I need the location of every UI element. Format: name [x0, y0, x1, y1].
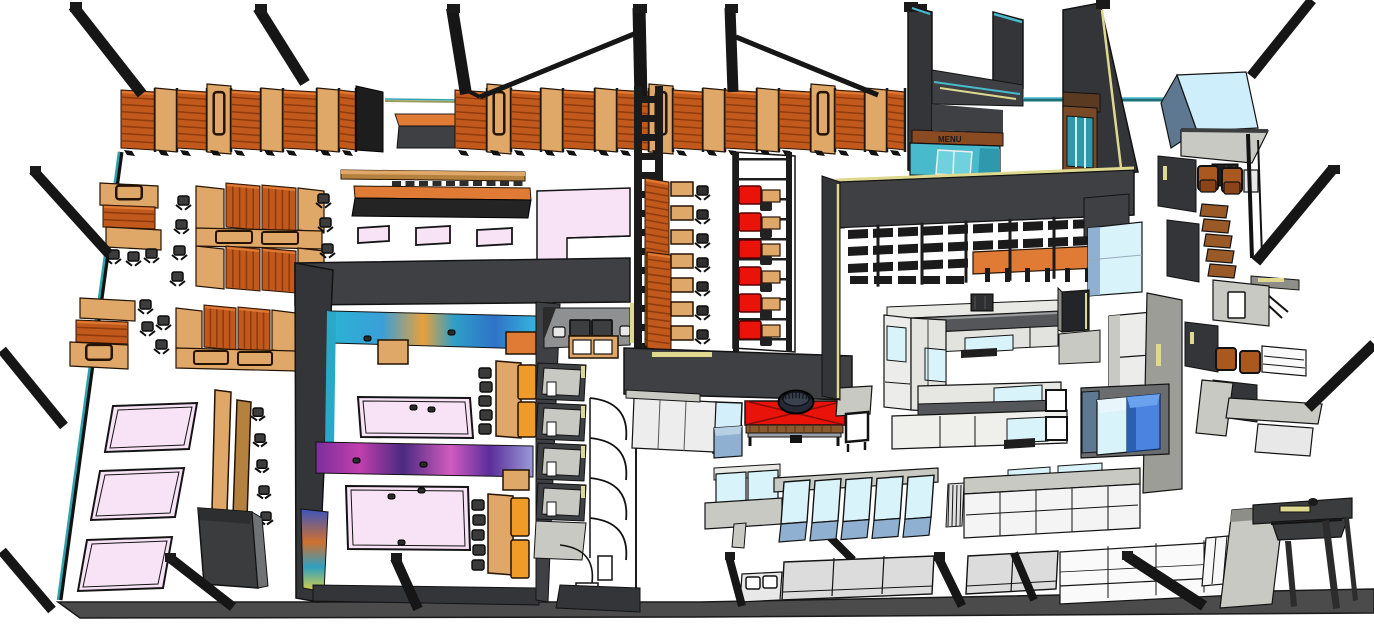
svg-text:MENU: MENU — [938, 135, 962, 144]
